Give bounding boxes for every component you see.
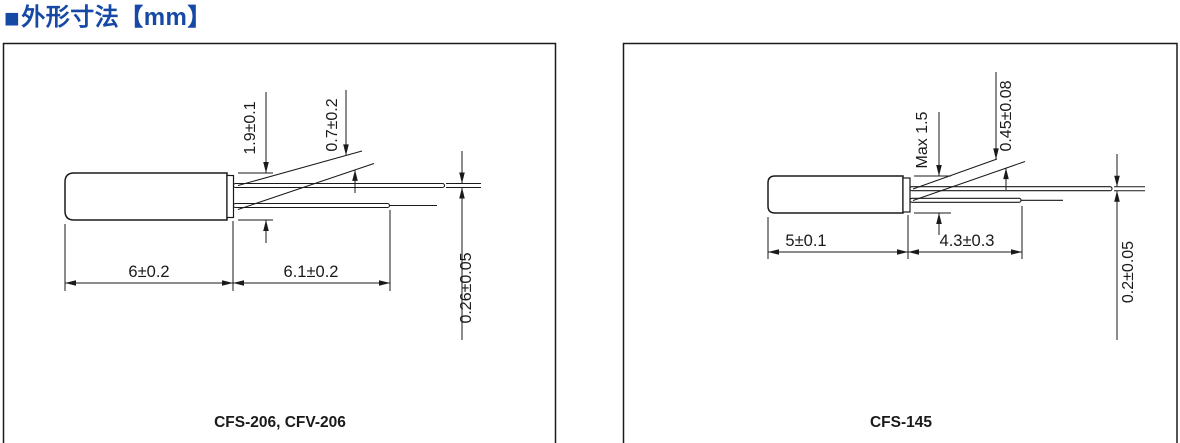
dim-label-body-length: 5±0.1 <box>785 232 826 250</box>
lead-top <box>910 187 1112 191</box>
panel-caption: CFS-145 <box>870 414 932 431</box>
dimension-drawings: 1.9±0.1 0.7±0.2 0.26±0.05 6±0.2 6.1±0.2 … <box>0 0 1180 443</box>
crystal-cap <box>227 176 234 218</box>
dim-label-lead-spacing: 0.7±0.2 <box>324 98 341 151</box>
lead-bottom <box>910 198 1021 202</box>
dim-label-lead-diameter: 0.26±0.05 <box>458 252 475 323</box>
dim-label-lead-length: 4.3±0.3 <box>940 232 995 250</box>
crystal-cap <box>903 178 910 212</box>
crystal-body <box>65 173 234 220</box>
dim-label-diameter: 1.9±0.1 <box>242 101 259 154</box>
panel-box <box>624 44 1178 443</box>
panel-cfs145: Max 1.5 0.45±0.08 0.2±0.05 5±0.1 4.3±0.3… <box>624 44 1178 443</box>
dim-label-lead-length: 6.1±0.2 <box>284 263 339 281</box>
lead-top <box>234 184 445 188</box>
crystal-body <box>768 176 910 213</box>
outline-dimensions-section: ■ 外形寸法【mm】 <box>0 0 1180 443</box>
panel-box <box>4 44 556 443</box>
dim-label-lead-spacing: 0.45±0.08 <box>998 80 1015 151</box>
panel-caption: CFS-206, CFV-206 <box>214 414 346 431</box>
dim-label-body-length: 6±0.2 <box>128 263 169 281</box>
lead-bottom <box>234 204 390 208</box>
dim-label-diameter: Max 1.5 <box>914 111 931 168</box>
dim-label-lead-diameter: 0.2±0.05 <box>1120 241 1137 303</box>
panel-cfs206: 1.9±0.1 0.7±0.2 0.26±0.05 6±0.2 6.1±0.2 … <box>4 44 556 443</box>
